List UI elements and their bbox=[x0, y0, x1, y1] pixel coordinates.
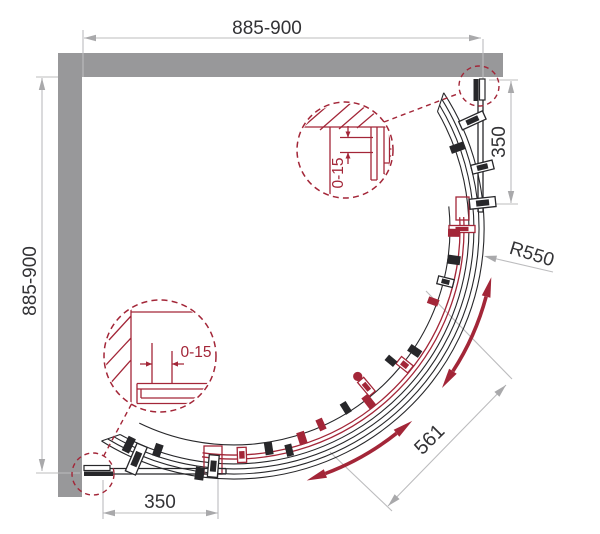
wall-top bbox=[58, 53, 503, 77]
door-roller-bracket bbox=[427, 296, 440, 306]
door-roller-bracket bbox=[237, 447, 247, 462]
arrowhead-icon bbox=[307, 469, 327, 480]
arrowhead-left-icon bbox=[84, 35, 96, 41]
arrowhead-leader-icon bbox=[484, 256, 497, 263]
frame-bracket bbox=[447, 255, 461, 266]
frame-bracket bbox=[194, 467, 205, 481]
dim-left-height-label: 885-900 bbox=[20, 246, 41, 316]
frame-bracket bbox=[284, 444, 294, 457]
gap-bottom-label: 0-15 bbox=[180, 344, 211, 361]
detail-circle-bottom: 0-15 bbox=[104, 300, 216, 417]
wall-profile-bottom-left bbox=[84, 466, 113, 477]
dim-top-width-label: 885-900 bbox=[232, 18, 302, 39]
arrowhead-up-icon bbox=[39, 78, 45, 90]
dim-bottom-350-label: 350 bbox=[144, 492, 176, 513]
frame-bracket bbox=[469, 197, 496, 210]
dimension-right-fixed-panel: 350 bbox=[489, 80, 518, 204]
dimension-door-width: 561 bbox=[330, 291, 512, 511]
dim-right-350-label: 350 bbox=[489, 126, 510, 158]
threshold-profiles bbox=[84, 79, 483, 474]
dim-561-label: 561 bbox=[410, 420, 449, 459]
frame-bracket bbox=[152, 443, 164, 458]
frame-bracket bbox=[385, 355, 398, 367]
radius-label: R550 bbox=[484, 238, 557, 272]
arrowhead-down-icon bbox=[508, 191, 514, 203]
shower-enclosure-installation-diagram: 885-900 885-900 350 350 561 R550 bbox=[0, 0, 600, 534]
arrowhead-up-icon bbox=[508, 81, 514, 93]
door-roller-bracket bbox=[351, 370, 375, 397]
curved-frame-arcs bbox=[102, 93, 485, 479]
arrowhead-left-icon bbox=[103, 510, 115, 516]
frame-bracket bbox=[207, 455, 219, 478]
arrowhead-right-icon bbox=[206, 510, 218, 516]
arrowhead-down-icon bbox=[39, 459, 45, 471]
frame-bracket bbox=[459, 111, 486, 130]
arrowhead-icon bbox=[482, 277, 492, 298]
frame-bracket bbox=[471, 160, 495, 174]
frame-bracket bbox=[340, 401, 352, 415]
radius-r550-label: R550 bbox=[507, 238, 557, 271]
frame-bracket bbox=[437, 276, 454, 288]
arrowhead-right-icon bbox=[469, 35, 481, 41]
detail-circle-top: 0-15 bbox=[297, 101, 394, 198]
wall-profile-top-right bbox=[474, 79, 486, 101]
door-roller-bracket bbox=[448, 229, 460, 237]
wall-left bbox=[58, 53, 82, 497]
gap-top-label: 0-15 bbox=[330, 157, 347, 188]
